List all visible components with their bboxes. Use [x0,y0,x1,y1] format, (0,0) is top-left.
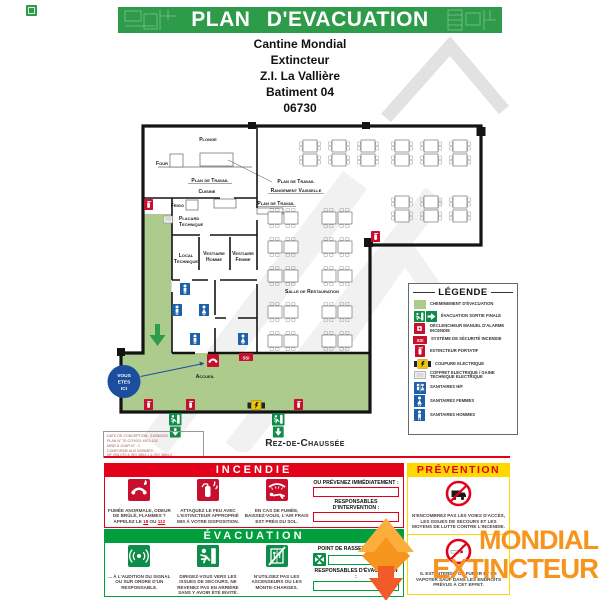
incendie-step-smoke: EN CAS DE FUMÉE, BAISSEZ-VOUS, L'AIR FRA… [244,479,310,527]
emergency-phone-icon [207,354,219,367]
legend-item: ÉVACUATION SORTIE FINALE [413,311,513,322]
brand-name: MONDIAL EXTINCTEUR [424,527,598,583]
emergency-number-112: 112 [158,519,165,524]
electrical-cabinet-icon [164,216,173,223]
brand-line-2: EXTINCTEUR [424,554,598,583]
divider-rule [104,456,510,458]
manual-alarm-icon [413,323,426,334]
svg-text:Accueil: Accueil [196,374,215,380]
svg-text:Four: Four [156,161,168,167]
phone-flame-icon [128,479,150,501]
electrical-cabinet-legend-icon [413,371,426,379]
svg-text:Technique: Technique [179,222,203,228]
legend-panel: LÉGENDE CHEMINEMENT D'ÉVACUATION ÉVACUAT… [408,283,518,435]
watermark-chevron-icon [372,30,512,122]
sanitary-h-icon [413,409,426,421]
legend-item: COFFRET ELECTRIQUE / GAINE TECHNIQUE ELE… [413,371,513,381]
no-blocking-truck-icon [445,480,472,507]
svg-text:SSI: SSI [243,355,250,360]
crawl-under-smoke-icon [266,479,288,501]
sanitary-f-icon [413,395,426,407]
evacuation-path-icon [413,300,426,309]
sanitary-hf-icon [413,382,426,394]
plan-info-box: DATE DE CONCEPTION : 21/08/2020 PLAN N° … [103,431,204,458]
legend-title: LÉGENDE [413,287,513,298]
corner-logo-icon [26,5,37,16]
svg-text:Plonge: Plonge [199,137,217,143]
legend-item: SANITAIRES HOMMES [413,409,513,421]
cutoff-legend-icon [413,359,431,369]
legend-item: SANITAIRES H/F [413,382,513,394]
extinguisher-legend-icon [413,345,426,357]
svg-text:Frigo: Frigo [171,203,184,209]
floor-label: Rez-de-Chaussée [230,438,380,449]
prevention-header: PRÉVENTION [407,463,510,477]
ssi-legend-icon: SSI [413,336,427,344]
svg-text:Homme: Homme [206,257,222,263]
legend-item: COUPURE ELECTRIQUE [413,359,513,369]
emergency-number-18: 18 [143,519,148,524]
svg-text:VOUS: VOUS [117,373,131,379]
no-elevator-icon [266,545,288,567]
legend-item: EXTINCTEUR PORTATIF [413,345,513,357]
evacuation-plan-page: PLAN D'EVACUATION Cantine Mondial Extinc… [0,0,600,600]
svg-text:SSI: SSI [417,338,424,343]
extinguisher-flame-icon [197,479,219,501]
prevenez-label: OU PRÉVENEZ IMMÉDIATEMENT : [313,480,399,486]
legend-item: SANITAIRES FEMMES [413,395,513,407]
svg-text:ICI: ICI [121,386,128,392]
alarm-signal-icon [128,545,150,567]
exit-man-icon [197,545,219,567]
svg-text:Technique: Technique [174,259,198,265]
brand-line-1: MONDIAL [424,527,598,554]
legend-item: DÉCLENCHEUR MANUEL D'ALARME INCENDIE [413,323,513,334]
ssi-icon: SSI [239,353,253,361]
svg-text:ETES: ETES [118,380,131,386]
svg-text:Plan de Travail: Plan de Travail [191,178,229,184]
incendie-header: INCENDIE [104,463,404,477]
svg-text:Plan de Travail: Plan de Travail [257,201,295,207]
legend-item: SSI SYSTÈME DE SÉCURITÉ INCENDIE [413,336,513,344]
incendie-step-extinguisher: ATTAQUEZ LE FEU AVEC L'EXTINCTEUR APPROP… [175,479,241,527]
svg-text:Plan de Travail: Plan de Travail [277,179,315,185]
assembly-point-icon [313,553,326,566]
final-exit-icon [413,311,437,322]
legend-item: CHEMINEMENT D'ÉVACUATION [413,300,513,309]
prevenez-box [313,487,399,497]
svg-text:Rangement Vaisselle: Rangement Vaisselle [271,188,322,194]
svg-text:Femme: Femme [235,257,250,263]
svg-text:Salle de Restauration: Salle de Restauration [285,289,339,295]
incendie-step-call: FUMÉE ANORMALE, ODEUR DE BRÛLÉ, FLAMMES … [106,479,172,527]
svg-text:Cuisine: Cuisine [199,189,216,195]
evacuation-step-exit: DIRIGEZ-VOUS VERS LES ISSUES DE SECOURS.… [175,545,241,596]
evacuation-step-no-elevator: N'UTILISEZ PAS LES ASCENSEURS OU LES MON… [244,545,310,596]
evacuation-step-signal: ... À L'AUDITION DU SIGNAL OU SUR ORDRE … [106,545,172,596]
